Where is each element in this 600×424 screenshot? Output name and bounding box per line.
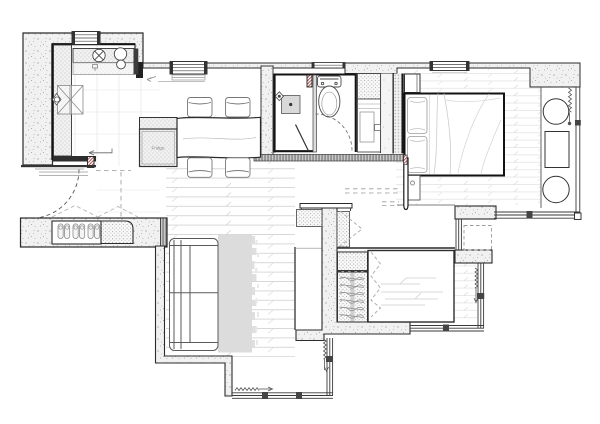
svg-text:Fridge: Fridge [151, 146, 164, 151]
